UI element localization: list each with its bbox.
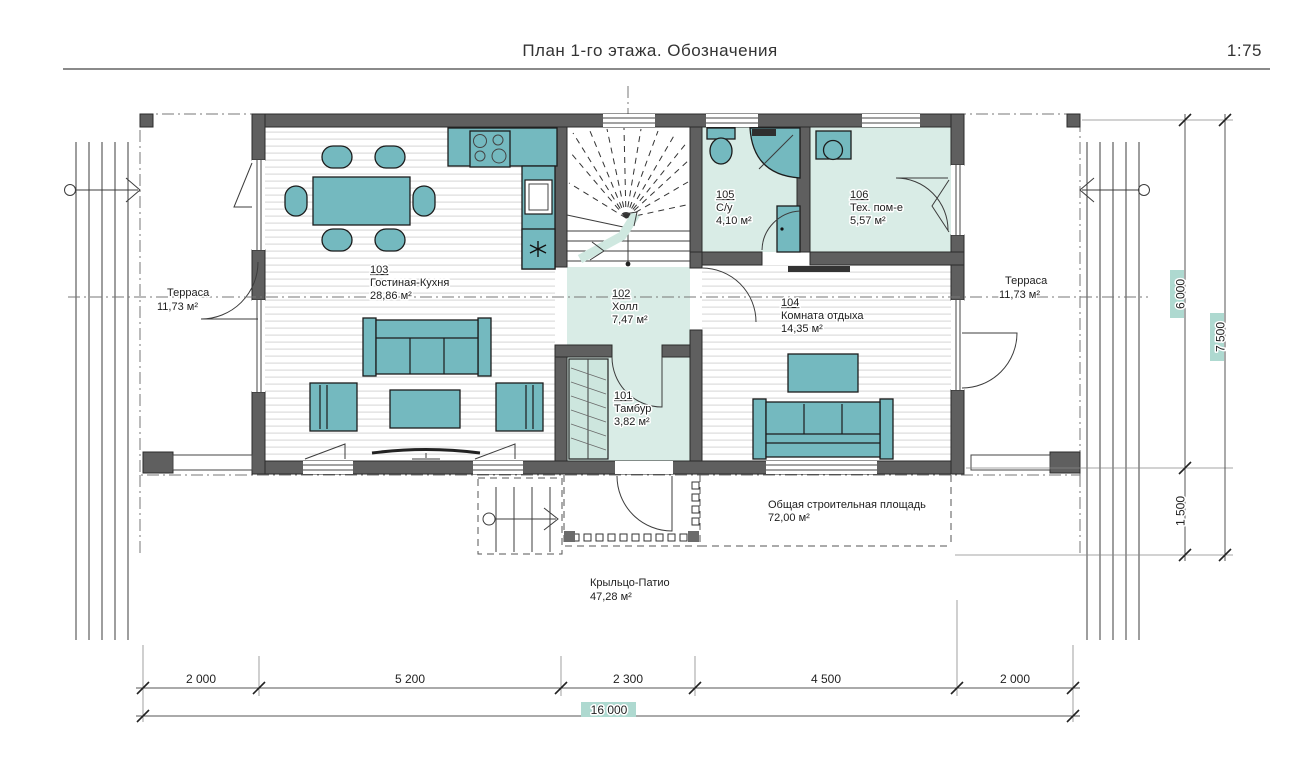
room-name: С/у — [716, 202, 733, 214]
room-number: 105 — [716, 189, 734, 201]
dim-label: 2 000 — [1000, 672, 1030, 686]
terrace-left-label: Терраса 11,73 м² — [157, 287, 210, 313]
window-lounge — [766, 461, 877, 474]
balustrade — [572, 482, 699, 541]
total-area-label: Общая строительная площадь 72,00 м² — [768, 499, 926, 524]
fridge-icon — [522, 229, 555, 269]
table — [788, 354, 858, 392]
porch-steps — [478, 478, 562, 554]
room-name: Тех. пом-е — [850, 202, 903, 214]
decking-left — [76, 142, 128, 640]
sofa — [363, 318, 491, 376]
area-value: 72,00 м² — [768, 512, 810, 524]
page-title: План 1-го этажа. Обозначения — [522, 41, 777, 60]
room-name: Тамбур — [614, 403, 651, 415]
dim-label: 5 200 — [395, 672, 425, 686]
room-number: 101 — [614, 390, 632, 402]
door-swing — [962, 333, 1017, 388]
tambur — [569, 359, 608, 459]
coffee-table — [390, 390, 460, 428]
room-area: 5,57 м² — [850, 215, 886, 227]
room-area: 7,47 м² — [612, 314, 648, 326]
area-name: Терраса — [167, 287, 210, 299]
area-name: Крыльцо-Патио — [590, 577, 670, 589]
dim-total-label: 16 000 — [591, 703, 628, 717]
dim-label: 7 500 — [1214, 322, 1228, 352]
dimensions-bottom: 2 000 5 200 2 300 4 500 2 000 16 000 — [136, 600, 1080, 722]
chair — [375, 146, 405, 168]
room-number: 106 — [850, 189, 868, 201]
porch-post — [688, 531, 699, 542]
chair — [322, 229, 352, 251]
dim-label: 2 300 — [613, 672, 643, 686]
cooktop-icon — [470, 131, 510, 167]
room-name: Гостиная-Кухня — [370, 277, 449, 289]
dim-label: 2 000 — [186, 672, 216, 686]
area-name: Общая строительная площадь — [768, 499, 926, 511]
room-name: Комната отдыха — [781, 310, 864, 322]
area-name: Терраса — [1005, 275, 1048, 287]
area-value: 47,28 м² — [590, 591, 632, 603]
decking-right — [1087, 142, 1139, 640]
dim-label: 6 000 — [1174, 279, 1188, 309]
dining-table — [313, 177, 410, 225]
chair — [375, 229, 405, 251]
door-swing — [617, 476, 672, 531]
header: План 1-го этажа. Обозначения 1:75 — [63, 41, 1270, 69]
stair-winder-fan — [569, 128, 689, 218]
chair — [322, 146, 352, 168]
dimensions-right: 6 000 1 500 7 500 — [955, 114, 1233, 561]
window-bathroom-top — [706, 114, 758, 127]
room-area: 14,35 м² — [781, 323, 823, 335]
room-number: 103 — [370, 264, 388, 276]
armchair — [310, 383, 357, 431]
area-value: 11,73 м² — [999, 289, 1040, 301]
window-terrace-left-2 — [252, 300, 265, 392]
chair — [413, 186, 435, 216]
area-value: 11,73 м² — [157, 301, 198, 313]
dim-label: 4 500 — [811, 672, 841, 686]
techroom-fixtures — [816, 131, 851, 160]
room-number: 102 — [612, 288, 630, 300]
porch-label: Крыльцо-Патио 47,28 м² — [590, 577, 670, 603]
sofa — [753, 399, 893, 459]
door-swing — [201, 262, 258, 319]
room-area: 3,82 м² — [614, 416, 650, 428]
room-area: 28,86 м² — [370, 290, 412, 302]
dim-label: 1 500 — [1174, 496, 1188, 526]
wardrobe — [569, 359, 608, 459]
floor-plan-drawing: План 1-го этажа. Обозначения 1:75 — [0, 0, 1315, 775]
chair — [285, 186, 307, 216]
window-techroom-top — [862, 114, 920, 127]
window-stairs-top — [603, 114, 655, 127]
porch-post — [564, 531, 575, 542]
room-number: 104 — [781, 297, 799, 309]
scale-label: 1:75 — [1227, 41, 1262, 60]
window-terrace-right-2 — [951, 300, 964, 390]
armchair — [496, 383, 543, 431]
entry-door-opening — [615, 461, 673, 474]
window-terrace-left-1 — [234, 160, 265, 250]
sink-icon — [525, 180, 552, 214]
room-name: Холл — [612, 301, 638, 313]
boiler-icon — [816, 131, 851, 160]
radiator — [788, 266, 850, 272]
staircase — [567, 128, 690, 266]
room-area: 4,10 м² — [716, 215, 752, 227]
